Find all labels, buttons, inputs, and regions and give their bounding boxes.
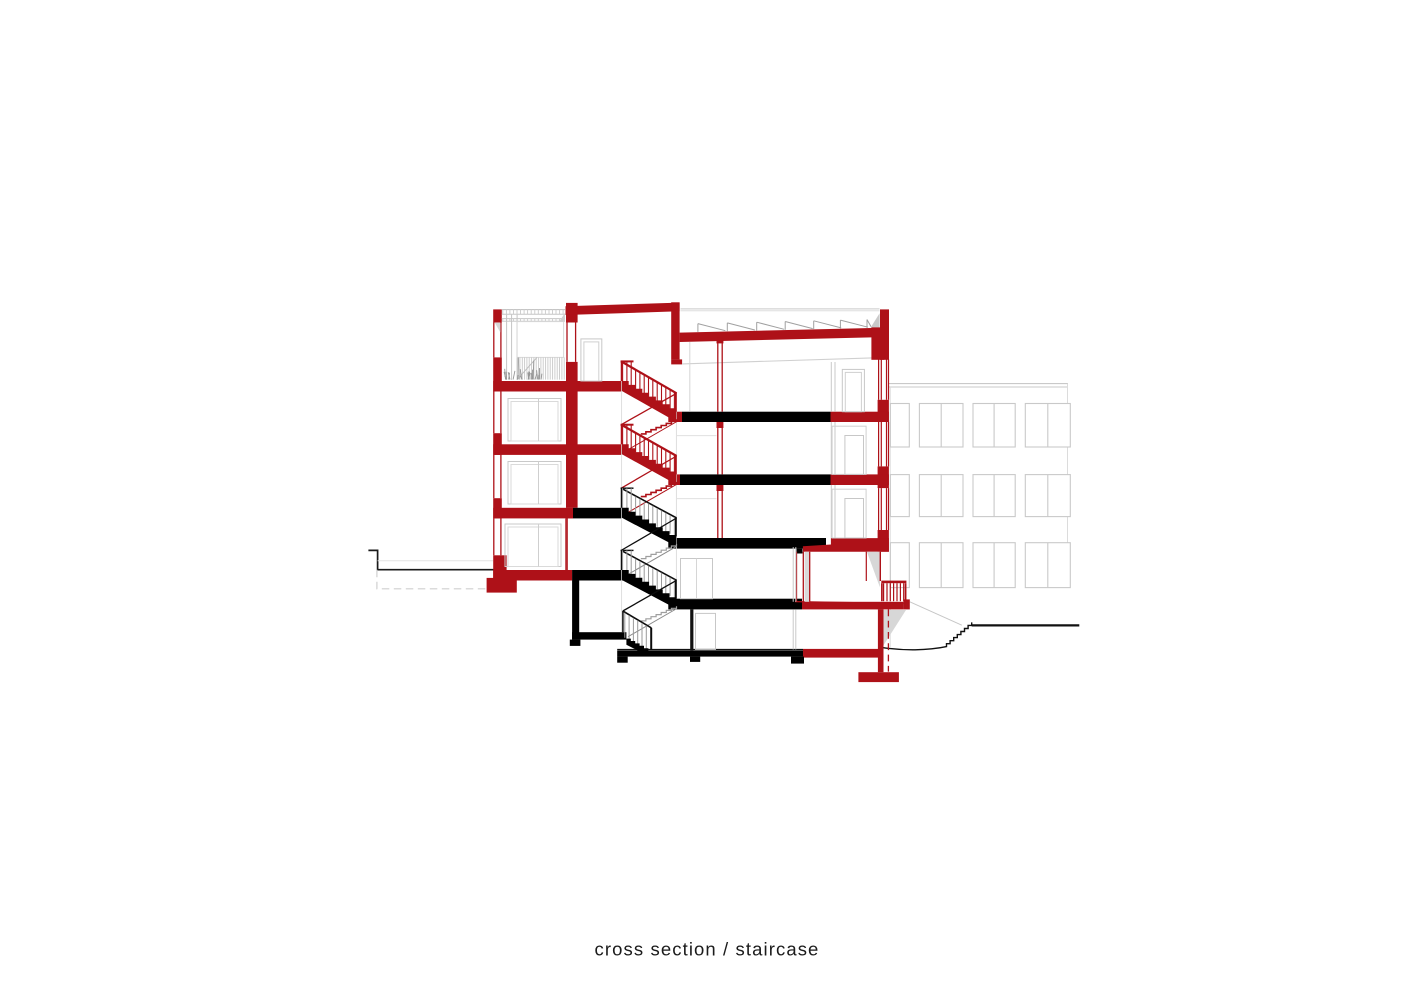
svg-text:cross section / staircase: cross section / staircase bbox=[595, 939, 820, 960]
